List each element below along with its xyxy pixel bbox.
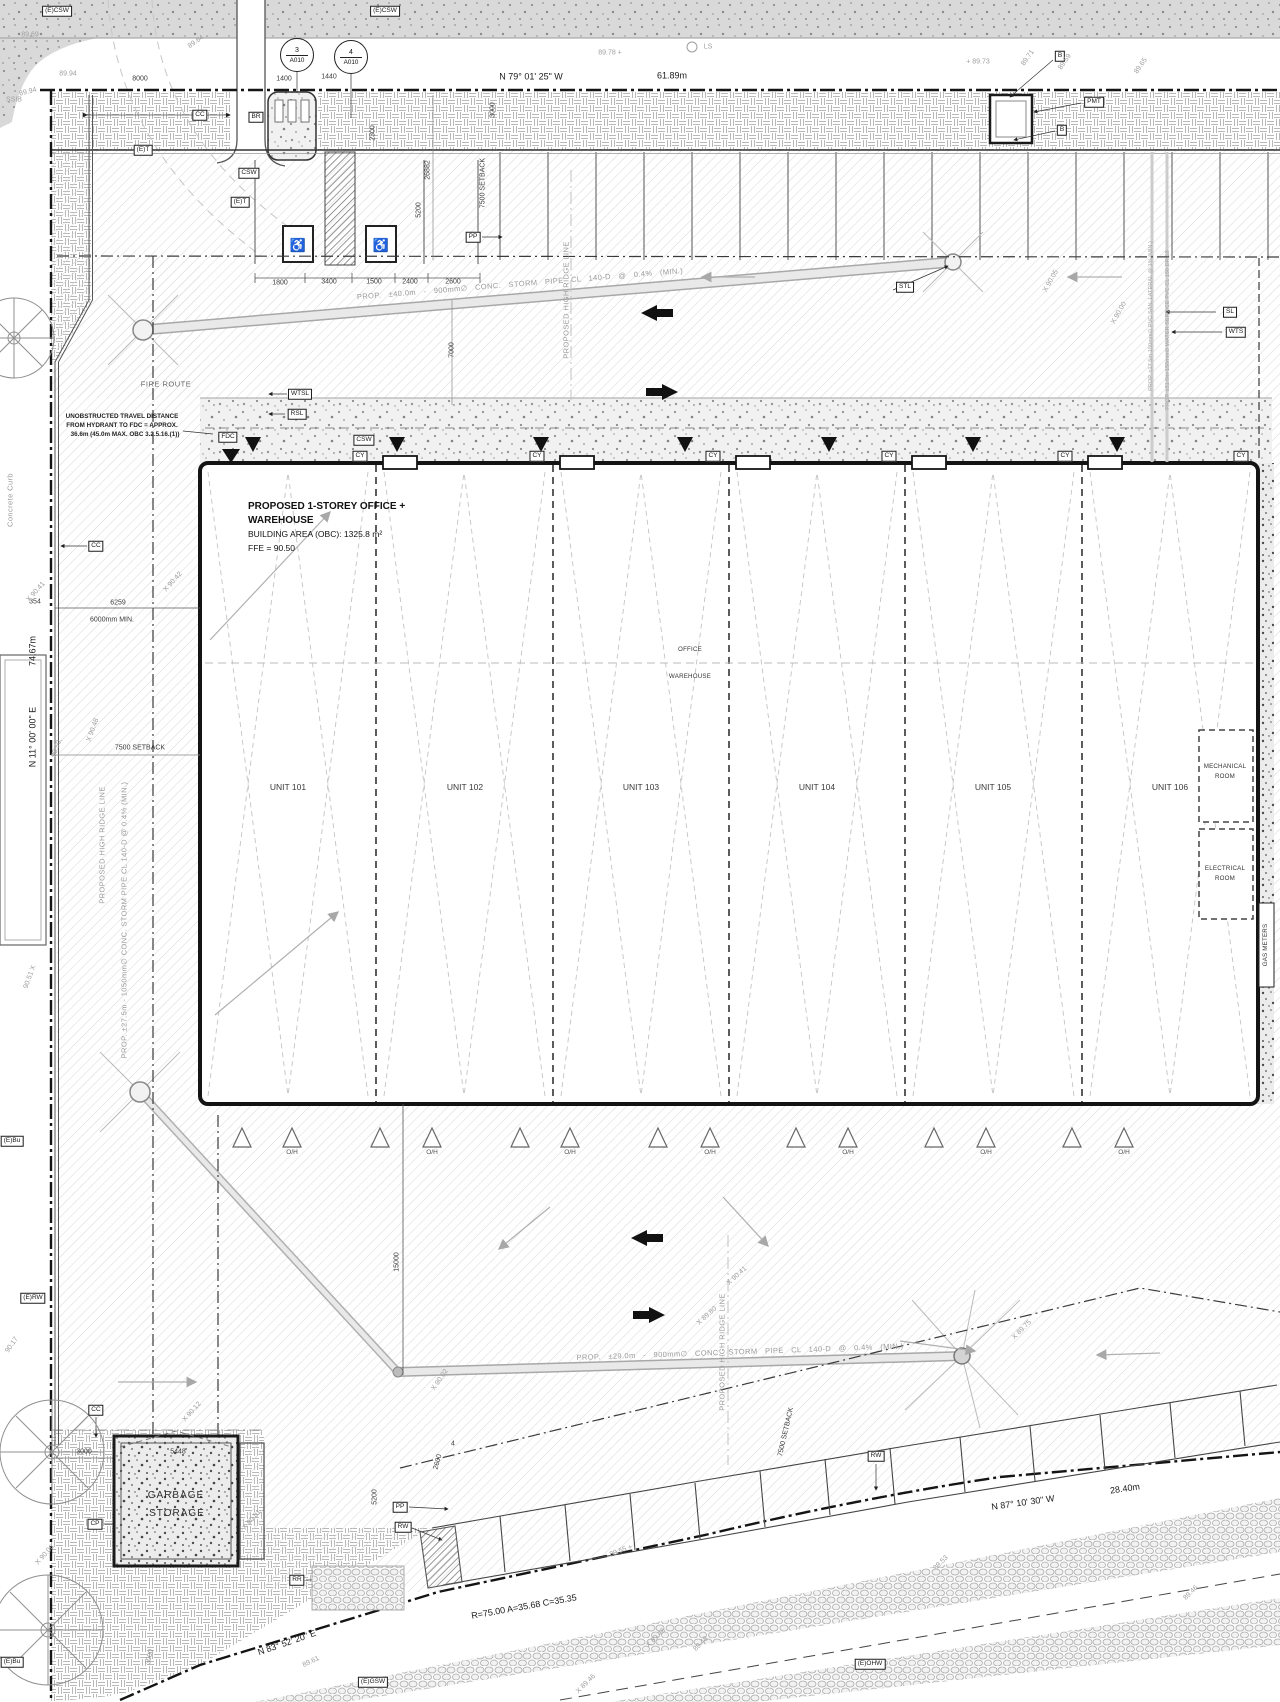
tag-erw: (E)RW <box>20 1293 45 1304</box>
bubble-sheet: A010 <box>290 56 305 64</box>
oh-3: O/H <box>564 1150 576 1157</box>
dim-4: 4 <box>451 1441 455 1448</box>
note-ridge-north: PROPOSED HIGH RIDGE LINE <box>562 241 570 359</box>
bearing-north: N 79° 01' 25" W <box>499 73 563 82</box>
dim-3000-b: 3000 <box>76 1449 92 1456</box>
building-ffe: FFE = 90.50 <box>248 542 405 556</box>
note-storm-west: PROP. ±27.5m - 1050mm∅ CONC. STORM PIPE … <box>120 782 128 1059</box>
building-area: BUILDING AREA (OBC): 1325.8 m² <box>248 528 405 542</box>
tag-ecsw-2: (E)CSW <box>370 6 400 17</box>
room-elec-1: ELECTRICAL <box>1205 866 1245 872</box>
tag-br: BR <box>248 112 263 123</box>
tag-eohw: (E)OHW <box>855 1659 886 1670</box>
unit-101: UNIT 101 <box>270 783 306 792</box>
dim-setback-b: 7500 SETBACK <box>115 745 165 752</box>
accessible-parking-icon: ♿ <box>290 239 306 252</box>
dim-2400: 2400 <box>402 279 418 286</box>
spot-ssib: SSIB <box>6 97 22 104</box>
tag-cy-3: CY <box>705 451 720 462</box>
tag-rw-2: RW <box>868 1451 885 1462</box>
length-north: 61.89m <box>657 72 687 81</box>
dim-1800: 1800 <box>272 280 288 287</box>
dim-3000-a: 3000 <box>490 102 497 118</box>
bubble-sheet: A010 <box>344 58 359 66</box>
dim-6000: 6000mm MIN. <box>90 617 134 624</box>
spot-8973: + 89.73 <box>966 59 990 66</box>
dim-8000: 8000 <box>132 76 148 83</box>
oh-5: O/H <box>842 1150 854 1157</box>
dim-7000: 7000 <box>449 342 456 358</box>
bearing-west: N 11° 00' 00" E <box>29 707 38 767</box>
garbage-2: STORAGE <box>149 1509 205 1519</box>
tag-stl: STL <box>896 282 914 293</box>
room-elec-2: ROOM <box>1215 876 1235 882</box>
tag-ebu-1: (E)Bu <box>1 1136 24 1147</box>
room-mech-2: ROOM <box>1215 774 1235 780</box>
tag-cy-5: CY <box>1057 451 1072 462</box>
room-mech-1: MECHANICAL <box>1204 764 1247 770</box>
garbage-1: GARBAGE <box>148 1491 204 1501</box>
tag-ecsw-1: (E)CSW <box>42 6 72 17</box>
tag-rr: RR <box>289 1575 304 1586</box>
tag-wts: WTS <box>1226 327 1246 338</box>
tag-cy-6: CY <box>1233 451 1248 462</box>
tag-cc-1: CC <box>192 110 207 121</box>
tag-rsl: RSL <box>288 409 307 420</box>
dim-26882: 26882 <box>425 160 432 179</box>
note-hydrant-3: 36.6m (45.0m MAX. OBC 3.2.5.16.(1)) <box>71 432 180 438</box>
tag-pmt: PMT <box>1084 97 1104 108</box>
tag-csw-2: CSW <box>353 435 374 446</box>
tag-cc-2: CC <box>88 541 103 552</box>
room-gas-meters: GAS METERS <box>1263 924 1269 967</box>
building-title-2: WAREHOUSE <box>248 514 405 528</box>
oh-6: O/H <box>980 1150 992 1157</box>
tag-cy-4: CY <box>881 451 896 462</box>
note-fire-route: FIRE ROUTE <box>141 380 191 388</box>
dim-1500: 1500 <box>366 279 382 286</box>
tag-wtsl: WTSL <box>288 389 312 400</box>
dim-5200-a: 5200 <box>416 202 423 218</box>
tag-fdc: FDC <box>218 432 237 443</box>
unit-105: UNIT 105 <box>975 783 1011 792</box>
tag-sl: SL <box>1223 307 1237 318</box>
tag-et-2: (E)T <box>231 197 250 208</box>
tag-b-2: B <box>1057 125 1067 136</box>
note-ridge-west: PROPOSED HIGH RIDGE LINE <box>98 786 106 904</box>
room-office: OFFICE <box>678 647 702 653</box>
tag-rw-1: RW <box>395 1522 412 1533</box>
dim-1440: 1440 <box>321 74 337 81</box>
unit-103: UNIT 103 <box>623 783 659 792</box>
spot-ls: LS <box>704 44 713 51</box>
tag-et-1: (E)T <box>134 145 153 156</box>
tag-ebu-2: (E)Bu <box>1 1657 24 1668</box>
spot-8994-a: 89.94 <box>59 71 77 78</box>
tag-cy-1: CY <box>352 451 367 462</box>
tag-egsw: (E)GSW <box>358 1677 388 1688</box>
note-water-service: PROP. ±31.0m-150mm∅ WATER SERVICE PVC CL… <box>1166 250 1172 410</box>
dim-3400: 3400 <box>321 279 337 286</box>
detail-bubble-3: 3A010 <box>280 38 314 72</box>
unit-102: UNIT 102 <box>447 783 483 792</box>
tag-cp: CP <box>87 1519 102 1530</box>
tag-pp-2: PP <box>393 1502 408 1513</box>
dim-2300: 2300 <box>370 125 377 141</box>
dim-15000: 15000 <box>394 1252 401 1271</box>
note-san-lateral: PROP. ±17.5m-150mm∅ PVC SAN. LATERAL @ 1… <box>1149 241 1155 391</box>
tag-cy-2: CY <box>529 451 544 462</box>
note-concrete-curb: Concrete Curb <box>6 473 14 527</box>
existing-building-west <box>0 655 46 945</box>
dim-1400: 1400 <box>276 76 292 83</box>
dim-setback-a: 7500 SETBACK <box>480 158 487 208</box>
building-title-block: PROPOSED 1-STOREY OFFICE + WAREHOUSE BUI… <box>248 500 405 555</box>
room-warehouse: WAREHOUSE <box>669 674 711 680</box>
bubble-number: 3 <box>286 47 307 56</box>
oh-7: O/H <box>1118 1150 1130 1157</box>
ls-symbol <box>687 42 697 52</box>
oh-4: O/H <box>704 1150 716 1157</box>
unit-106: UNIT 106 <box>1152 783 1188 792</box>
tag-cc-3: CC <box>88 1405 103 1416</box>
oh-1: O/H <box>286 1150 298 1157</box>
accessible-parking-icon: ♿ <box>373 239 389 252</box>
note-hydrant-2: FROM HYDRANT TO FDC = APPROX. <box>66 423 177 429</box>
building-title-1: PROPOSED 1-STOREY OFFICE + <box>248 500 405 514</box>
dim-5448: 5448 <box>170 1449 186 1456</box>
tag-csw-1: CSW <box>238 168 259 179</box>
dim-6259: 6259 <box>110 600 126 607</box>
detail-bubble-4: 4A010 <box>334 40 368 74</box>
note-hydrant-1: UNOBSTRUCTED TRAVEL DISTANCE <box>66 414 179 420</box>
unit-104: UNIT 104 <box>799 783 835 792</box>
oh-2: O/H <box>426 1150 438 1157</box>
dim-5200-b: 5200 <box>372 1489 379 1505</box>
spot-8969: 89.69 <box>21 32 39 39</box>
site-plan: PROPOSED 1-STOREY OFFICE + WAREHOUSE BUI… <box>0 0 1280 1702</box>
bubble-number: 4 <box>340 49 361 58</box>
site-plan-drawing <box>0 0 1280 1702</box>
length-west: 74.67m <box>29 636 38 666</box>
tag-pp-1: PP <box>466 232 481 243</box>
spot-8978: 89.78 + <box>598 50 622 57</box>
